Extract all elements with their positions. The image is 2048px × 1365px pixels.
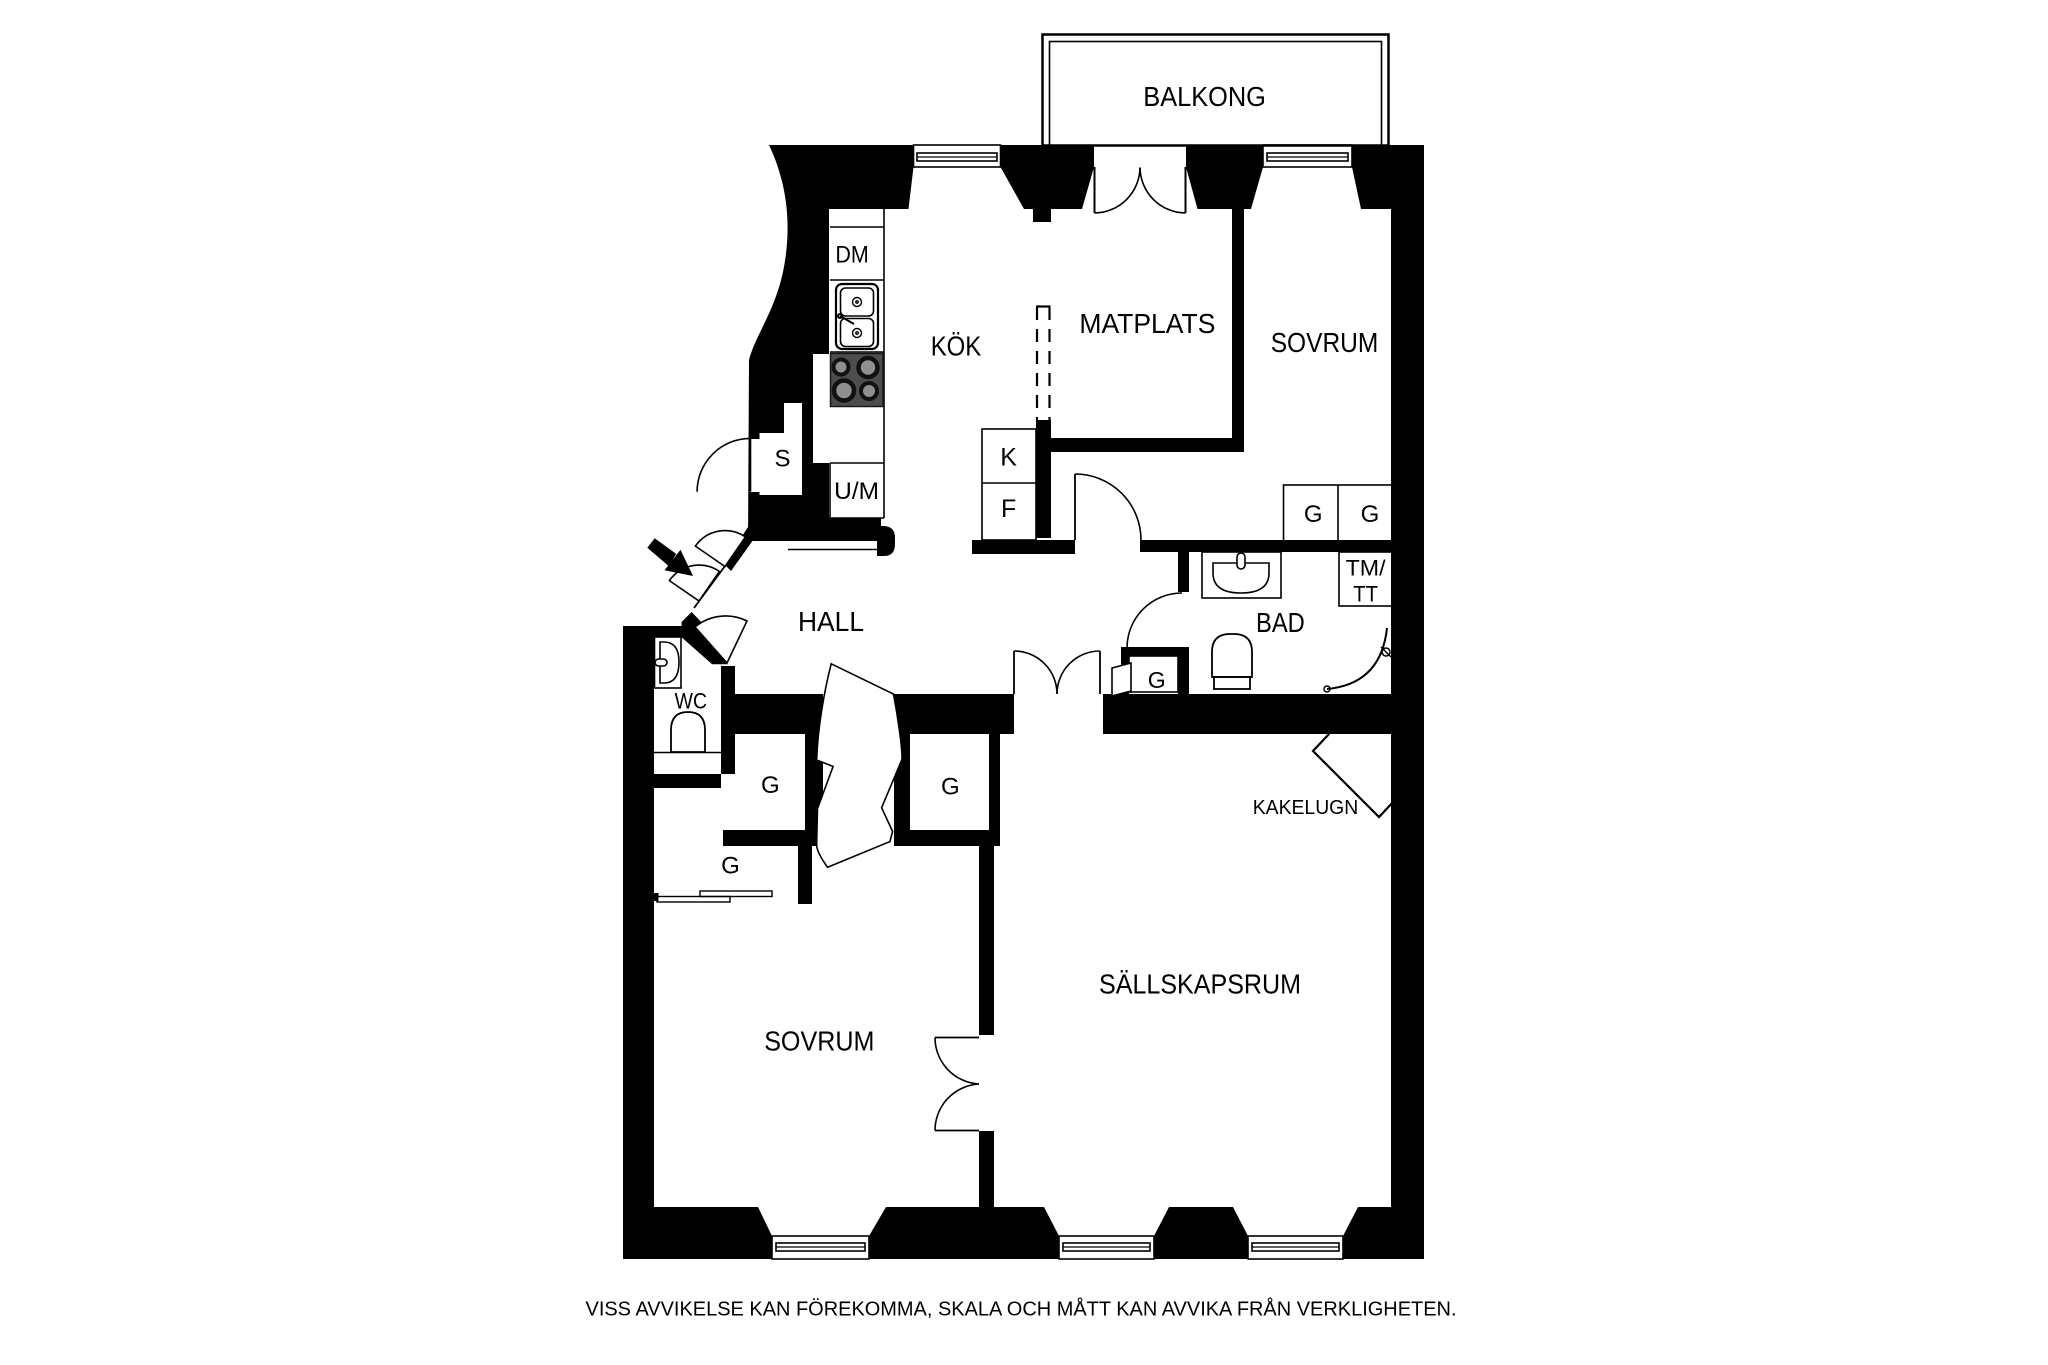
svg-text:BALKONG: BALKONG	[1143, 81, 1266, 112]
svg-text:MATPLATS: MATPLATS	[1079, 308, 1215, 339]
svg-text:G: G	[1148, 667, 1166, 693]
svg-text:G: G	[721, 852, 740, 879]
svg-text:SOVRUM: SOVRUM	[764, 1026, 874, 1057]
svg-text:K: K	[1000, 444, 1017, 472]
svg-text:WC: WC	[675, 689, 707, 714]
svg-text:VISS AVVIKELSE KAN FÖREKOMMA,: VISS AVVIKELSE KAN FÖREKOMMA, SKALA OCH …	[586, 1297, 1457, 1320]
svg-text:U/M: U/M	[834, 478, 879, 505]
svg-text:F: F	[1001, 495, 1016, 523]
svg-text:KÖK: KÖK	[931, 331, 982, 362]
svg-text:G: G	[1361, 501, 1380, 528]
svg-text:G: G	[941, 774, 960, 801]
svg-text:TM/: TM/	[1346, 556, 1387, 581]
svg-text:DM: DM	[835, 242, 868, 269]
svg-text:SÄLLSKAPSRUM: SÄLLSKAPSRUM	[1099, 968, 1301, 999]
svg-text:TT: TT	[1353, 581, 1378, 606]
svg-text:SOVRUM: SOVRUM	[1271, 327, 1379, 358]
svg-text:G: G	[1304, 501, 1323, 528]
svg-text:S: S	[774, 446, 790, 473]
svg-text:HALL: HALL	[798, 606, 864, 637]
svg-text:G: G	[761, 772, 780, 799]
svg-text:KAKELUGN: KAKELUGN	[1253, 797, 1359, 819]
svg-text:BAD: BAD	[1256, 607, 1305, 638]
